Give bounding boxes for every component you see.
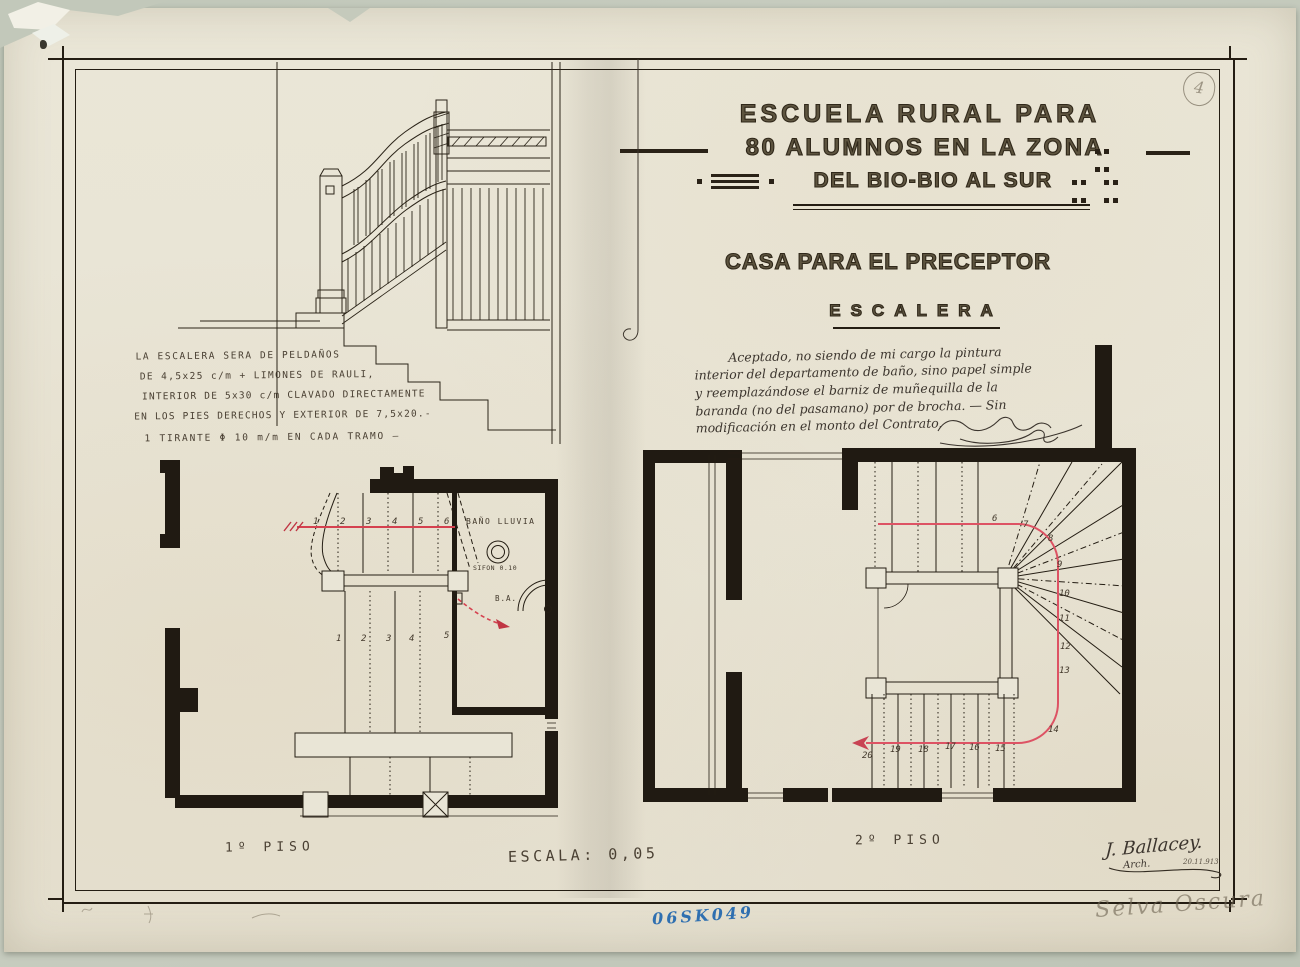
plan2-labels: 6 7 8 9 10 11 12 13 14 15 16 17 18 19 20 bbox=[862, 514, 1071, 761]
tread-number: 4 bbox=[409, 634, 414, 644]
elevation-landing-balustrade bbox=[447, 130, 550, 400]
frame-corner-tick bbox=[62, 46, 64, 60]
tread-number: 7 bbox=[1023, 520, 1029, 530]
elevation-balusters bbox=[342, 124, 446, 324]
tread-number: 15 bbox=[995, 744, 1006, 754]
tread-number: 14 bbox=[1048, 725, 1059, 735]
tread-number: 8 bbox=[1048, 534, 1053, 544]
architect-signature-block: J. Ballacey. Arch. 20.11.913 bbox=[1105, 834, 1245, 887]
tread-number: 3 bbox=[365, 517, 371, 527]
drawing-title: ESCALERA bbox=[716, 301, 1116, 321]
tread-number: 1 bbox=[336, 634, 341, 644]
tread-number: 10 bbox=[1059, 589, 1070, 599]
plan2-walls bbox=[643, 345, 1136, 802]
tread-number: 18 bbox=[918, 745, 929, 755]
plan1-stair-linework bbox=[295, 493, 558, 817]
title-ornament-dash-left bbox=[620, 149, 708, 153]
title-ornament-squares bbox=[1104, 172, 1118, 208]
tread-number: 2 bbox=[361, 634, 366, 644]
tread-number: 5 bbox=[444, 631, 449, 641]
tread-number: 13 bbox=[1059, 666, 1070, 676]
tread-number: 1 bbox=[313, 517, 318, 527]
frame-corner-tick bbox=[62, 900, 64, 912]
tread-number: 12 bbox=[1060, 642, 1071, 652]
frame-corner-tick bbox=[1229, 46, 1231, 60]
title-ornament-dash-right bbox=[1146, 151, 1190, 155]
title-line-1: ESCUELA RURAL PARA bbox=[720, 100, 1120, 129]
plan-second-floor: 6 7 8 9 10 11 12 13 14 15 16 17 18 19 20 bbox=[640, 340, 1140, 815]
tread-number: 6 bbox=[992, 514, 997, 524]
tread-number: 3 bbox=[385, 634, 391, 644]
plan1-floor-label: 1º PISO bbox=[225, 839, 315, 855]
tread-number: 6 bbox=[444, 517, 449, 527]
tread-number: 11 bbox=[1059, 614, 1070, 624]
ink-speck bbox=[40, 40, 47, 49]
tread-number: 19 bbox=[890, 745, 901, 755]
stair-elevation-drawing bbox=[170, 58, 570, 448]
plan2-stair-linework bbox=[866, 462, 1125, 788]
elevation-landing-post bbox=[434, 100, 449, 328]
tread-number: 2 bbox=[340, 517, 345, 527]
plan2-floor-label: 2º PISO bbox=[855, 833, 945, 849]
tread-number: 4 bbox=[392, 517, 397, 527]
drawing-title-underline bbox=[833, 327, 1000, 329]
plan-first-floor: BAÑO LLUVIA SIFON 0.10 B.A. 1 2 3 4 5 6 … bbox=[160, 445, 590, 835]
bath-room-label: BAÑO LLUVIA bbox=[466, 516, 535, 526]
project-title: CASA PARA EL PRECEPTOR bbox=[688, 249, 1088, 275]
elevation-newel-post bbox=[316, 169, 346, 313]
tread-number: 20 bbox=[862, 751, 873, 761]
elevation-walls bbox=[277, 62, 560, 444]
elevation-floor-steps bbox=[178, 313, 556, 430]
sheet-number: 4 bbox=[1193, 77, 1206, 97]
title-ornament-squares bbox=[1072, 172, 1086, 208]
plan2-red-path bbox=[852, 524, 1058, 750]
title-ornament-bars-left bbox=[697, 171, 774, 197]
tread-number: 16 bbox=[969, 743, 980, 753]
ba-label: B.A. bbox=[495, 594, 517, 603]
title-line-2: 80 ALUMNOS EN LA ZONA bbox=[725, 134, 1125, 162]
frame-corner-tick bbox=[1231, 58, 1247, 60]
sifon-label: SIFON 0.10 bbox=[473, 564, 517, 572]
title-underline bbox=[793, 204, 1090, 210]
tread-number: 9 bbox=[1057, 560, 1062, 570]
tread-number: 5 bbox=[418, 517, 423, 527]
tread-number: 17 bbox=[945, 742, 956, 752]
